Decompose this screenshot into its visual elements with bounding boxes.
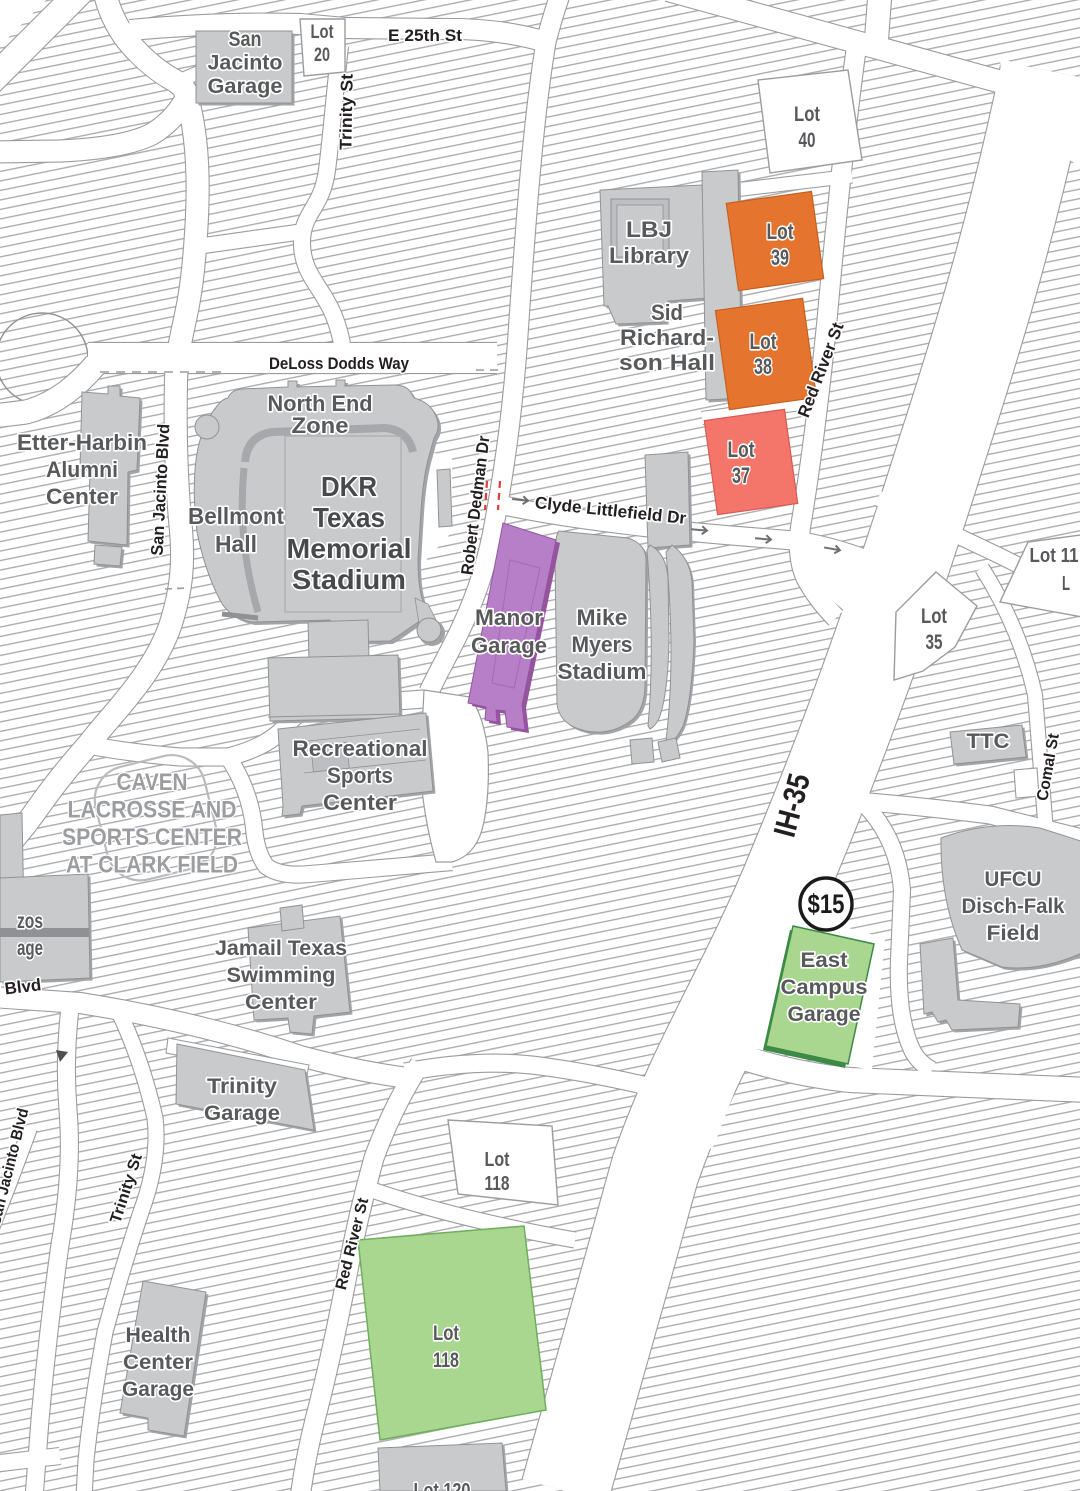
svg-text:Lot: Lot bbox=[311, 22, 335, 43]
svg-text:Disch-Falk: Disch-Falk bbox=[962, 895, 1065, 918]
svg-text:Lot: Lot bbox=[767, 219, 795, 244]
svg-text:Trinity St: Trinity St bbox=[336, 73, 356, 150]
svg-text:$15: $15 bbox=[808, 889, 845, 919]
svg-text:Center: Center bbox=[123, 1351, 193, 1374]
svg-text:Manor: Manor bbox=[475, 605, 543, 630]
svg-text:Zone: Zone bbox=[292, 413, 349, 438]
svg-text:Center: Center bbox=[245, 991, 317, 1014]
svg-text:Garage: Garage bbox=[208, 75, 283, 98]
svg-text:UFCU: UFCU bbox=[985, 868, 1042, 891]
svg-text:Hall: Hall bbox=[215, 531, 257, 557]
svg-text:Garage: Garage bbox=[204, 1102, 280, 1125]
svg-text:Etter-Harbin: Etter-Harbin bbox=[17, 430, 147, 455]
svg-text:Lot: Lot bbox=[750, 329, 778, 354]
svg-text:Lot: Lot bbox=[921, 605, 947, 628]
svg-text:CAVEN: CAVEN bbox=[117, 769, 188, 796]
svg-text:LACROSSE AND: LACROSSE AND bbox=[68, 797, 237, 824]
svg-text:age: age bbox=[17, 937, 43, 960]
svg-text:TTC: TTC bbox=[967, 730, 1010, 753]
svg-text:118: 118 bbox=[485, 1173, 510, 1195]
svg-text:Recreational: Recreational bbox=[293, 736, 428, 761]
svg-text:Center: Center bbox=[46, 484, 118, 509]
svg-text:Garage: Garage bbox=[788, 1003, 861, 1026]
svg-text:38: 38 bbox=[754, 354, 772, 379]
svg-text:Swimming: Swimming bbox=[227, 964, 336, 987]
svg-text:DeLoss Dodds Way: DeLoss Dodds Way bbox=[269, 354, 409, 373]
svg-text:Texas: Texas bbox=[313, 502, 385, 533]
svg-text:20: 20 bbox=[314, 45, 330, 66]
svg-text:DKR: DKR bbox=[321, 471, 377, 502]
svg-text:37: 37 bbox=[732, 463, 750, 488]
svg-text:Jacinto: Jacinto bbox=[208, 52, 283, 75]
svg-text:Jamail Texas: Jamail Texas bbox=[215, 937, 347, 960]
svg-text:Sports: Sports bbox=[327, 763, 393, 788]
svg-text:Lot: Lot bbox=[433, 1322, 459, 1345]
svg-text:AT CLARK FIELD: AT CLARK FIELD bbox=[66, 852, 238, 879]
svg-text:Health: Health bbox=[126, 1324, 191, 1347]
svg-text:Field: Field bbox=[987, 922, 1040, 945]
svg-text:SPORTS CENTER: SPORTS CENTER bbox=[62, 824, 242, 851]
svg-text:Stadium: Stadium bbox=[292, 564, 406, 595]
svg-text:118: 118 bbox=[433, 1349, 459, 1372]
svg-text:Stadium: Stadium bbox=[558, 659, 647, 684]
svg-text:35: 35 bbox=[926, 631, 943, 654]
svg-text:Campus: Campus bbox=[781, 976, 868, 999]
svg-text:Lot: Lot bbox=[728, 437, 756, 462]
svg-text:zos: zos bbox=[17, 910, 43, 933]
svg-text:son Hall: son Hall bbox=[619, 350, 715, 375]
svg-text:Bellmont: Bellmont bbox=[188, 503, 284, 529]
svg-text:Library: Library bbox=[609, 243, 690, 268]
svg-text:Trinity: Trinity bbox=[207, 1075, 277, 1098]
svg-text:Myers: Myers bbox=[572, 632, 633, 657]
svg-text:East: East bbox=[801, 949, 848, 972]
svg-text:Garage: Garage bbox=[471, 633, 547, 658]
svg-text:Lot: Lot bbox=[485, 1149, 510, 1171]
svg-text:40: 40 bbox=[799, 129, 816, 152]
svg-text:Lot 120: Lot 120 bbox=[414, 1480, 471, 1491]
svg-text:E 25th St: E 25th St bbox=[388, 26, 462, 45]
svg-text:Lot: Lot bbox=[794, 103, 820, 126]
svg-text:Mike: Mike bbox=[577, 605, 628, 630]
svg-text:Garage: Garage bbox=[122, 1378, 194, 1401]
svg-text:L: L bbox=[1062, 573, 1070, 595]
svg-text:Richard-: Richard- bbox=[620, 325, 714, 350]
svg-text:San: San bbox=[229, 28, 262, 51]
svg-text:Alumni: Alumni bbox=[46, 457, 118, 482]
svg-text:Center: Center bbox=[323, 790, 397, 815]
svg-text:Memorial: Memorial bbox=[287, 533, 412, 564]
svg-text:Lot 11: Lot 11 bbox=[1030, 545, 1079, 567]
svg-text:LBJ: LBJ bbox=[626, 217, 672, 242]
svg-text:39: 39 bbox=[771, 245, 789, 270]
svg-text:Sid: Sid bbox=[651, 300, 683, 325]
